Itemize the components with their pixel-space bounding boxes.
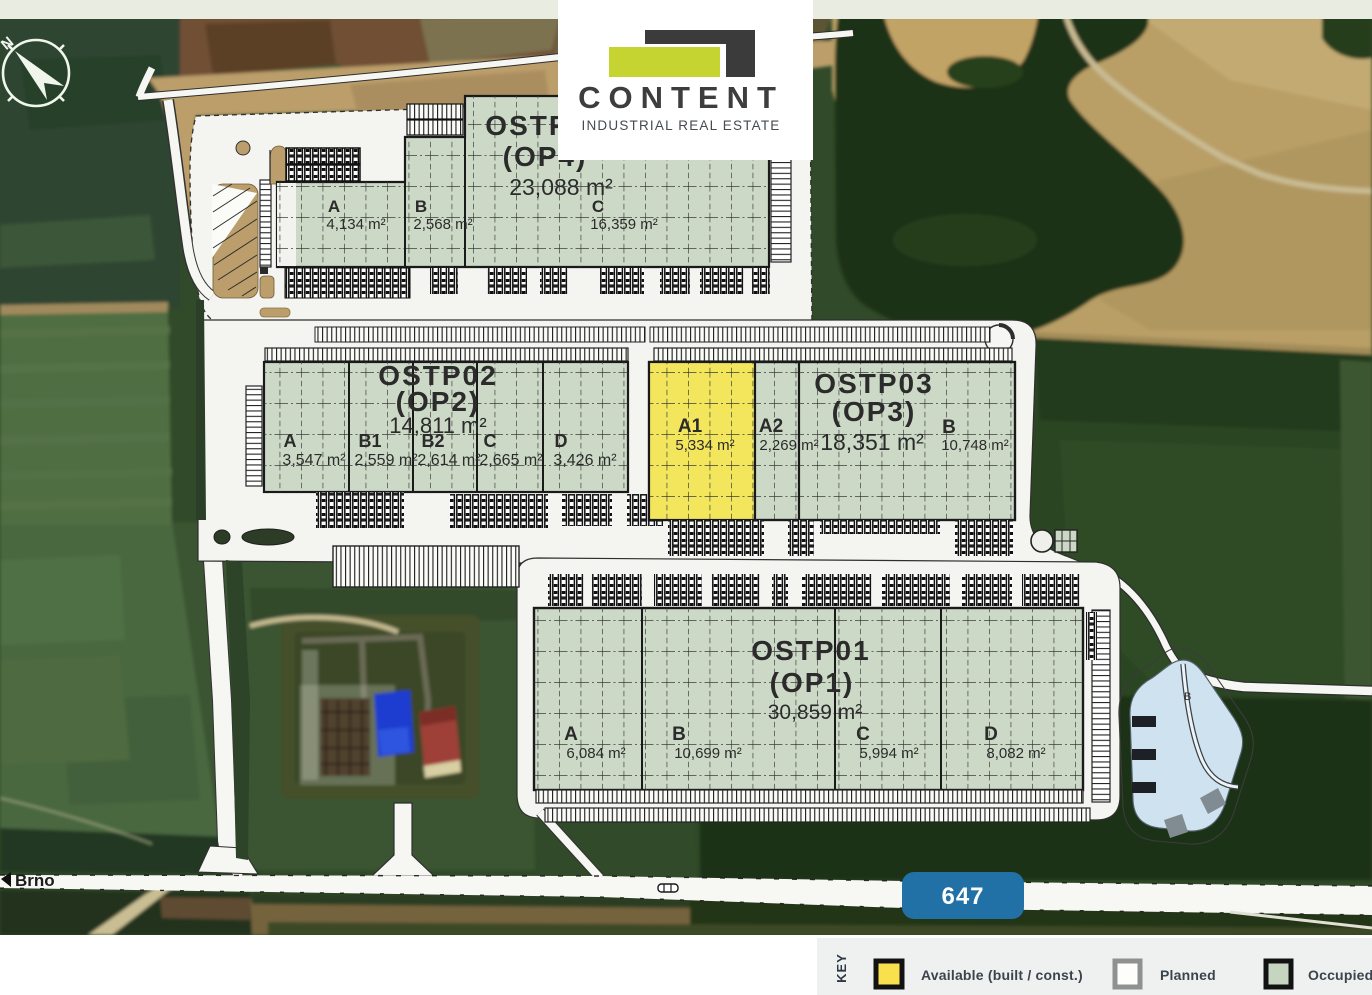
svg-text:B: B [672,724,686,745]
svg-text:B1: B1 [358,431,381,451]
svg-text:A1: A1 [678,416,703,437]
svg-text:2,665 m²: 2,665 m² [479,452,543,469]
svg-text:30,859 m²: 30,859 m² [768,701,863,724]
svg-text:5,334 m²: 5,334 m² [675,437,734,454]
svg-text:10,748 m²: 10,748 m² [941,437,1009,454]
svg-text:2,559 m²: 2,559 m² [354,452,418,469]
svg-text:6,084 m²: 6,084 m² [566,745,625,762]
svg-text:16,359 m²: 16,359 m² [590,216,658,233]
svg-text:Available (built / const.): Available (built / const.) [921,967,1083,983]
svg-text:A: A [284,431,297,451]
svg-text:2,614 m²: 2,614 m² [417,452,481,469]
svg-text:5,994 m²: 5,994 m² [859,745,918,762]
svg-text:A: A [328,197,340,216]
svg-text:3,426 m²: 3,426 m² [553,452,617,469]
svg-text:C: C [856,724,870,745]
svg-text:OSTP01: OSTP01 [751,635,870,666]
svg-text:C: C [592,197,604,216]
svg-text:647: 647 [941,883,984,910]
svg-text:C: C [484,431,497,451]
svg-text:Planned: Planned [1160,967,1216,983]
svg-text:B2: B2 [421,431,444,451]
svg-text:INDUSTRIAL REAL ESTATE: INDUSTRIAL REAL ESTATE [582,118,781,133]
svg-text:B: B [1184,691,1191,703]
svg-text:4,134 m²: 4,134 m² [326,216,385,233]
svg-text:B: B [942,417,956,438]
svg-text:2,568 m²: 2,568 m² [413,216,472,233]
svg-text:(OP1): (OP1) [770,667,855,698]
svg-text:Brno: Brno [15,871,55,890]
svg-text:D: D [984,724,998,745]
svg-text:8,082 m²: 8,082 m² [986,745,1045,762]
svg-text:KEY: KEY [834,953,849,983]
svg-text:A2: A2 [759,416,783,437]
svg-text:(OP3): (OP3) [832,396,917,427]
svg-text:OSTP03: OSTP03 [814,368,933,399]
svg-text:Occupied: Occupied [1308,967,1372,983]
svg-text:3,547 m²: 3,547 m² [282,452,346,469]
svg-text:18,351 m²: 18,351 m² [820,429,924,455]
svg-text:CONTENT: CONTENT [578,80,784,115]
svg-text:A: A [564,724,578,745]
svg-text:B: B [415,197,427,216]
svg-text:10,699 m²: 10,699 m² [674,745,742,762]
svg-text:2,269 m²: 2,269 m² [759,437,818,454]
svg-text:D: D [555,431,568,451]
